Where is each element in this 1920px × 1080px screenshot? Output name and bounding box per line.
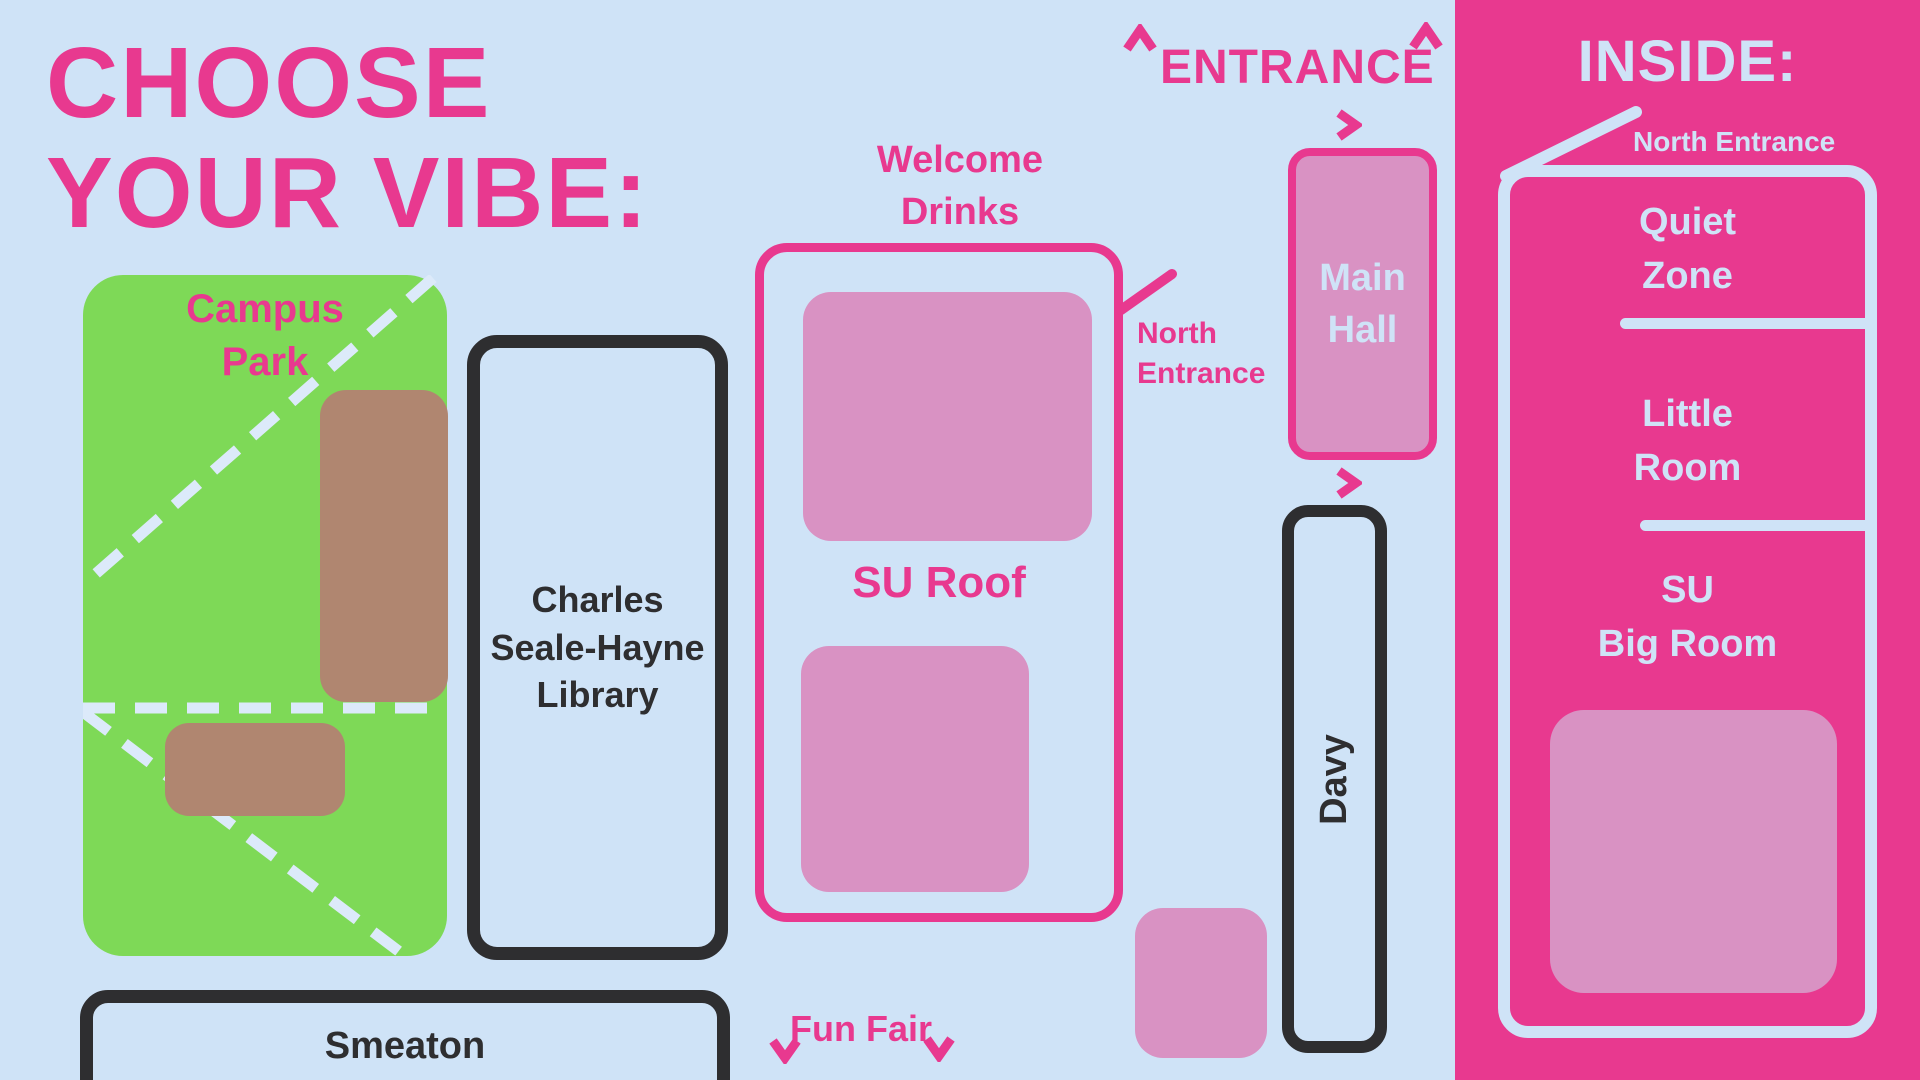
campus-park-area: Campus Park — [83, 275, 447, 956]
su-roof-terrace-upper — [803, 292, 1092, 541]
davy-area: Davy — [1282, 505, 1387, 1053]
chevron-right-icon — [1332, 108, 1362, 142]
page-title-line2: YOUR VIBE: — [46, 138, 746, 248]
su-north-entrance-line1: North — [1137, 314, 1265, 354]
room-little-room: Little Room — [1498, 388, 1877, 496]
welcome-drinks-heading: Welcome Drinks — [810, 134, 1110, 239]
library-label-line1: Charles — [490, 576, 704, 624]
campus-park-label: Campus Park — [83, 283, 447, 389]
inside-north-entrance-label: North Entrance — [1633, 126, 1920, 158]
smeaton-label: Smeaton — [93, 1025, 717, 1068]
main-hall-label: Main Hall — [1319, 252, 1406, 357]
page-title-line1: CHOOSE — [46, 28, 746, 138]
su-roof-area: SU Roof — [755, 243, 1123, 922]
room-quiet-zone-line1: Quiet — [1498, 196, 1877, 250]
su-roof-terrace-lower — [801, 646, 1029, 892]
entrance-heading: ENTRANCE — [1160, 40, 1435, 95]
room-divider — [1620, 318, 1877, 329]
inside-panel-title: INSIDE: — [1455, 28, 1920, 95]
room-su-big-room: SU Big Room — [1498, 564, 1877, 672]
inside-panel: INSIDE: North Entrance Quiet Zone Little… — [1455, 0, 1920, 1080]
main-hall-label-line2: Hall — [1319, 304, 1406, 356]
campus-park-label-line2: Park — [83, 336, 447, 389]
room-su-big-room-line2: Big Room — [1498, 618, 1877, 672]
unlabeled-building-rect — [1135, 908, 1267, 1058]
su-big-room-floor-rect — [1550, 710, 1837, 993]
park-dirt-patch-large — [320, 390, 448, 702]
fun-fair-label: Fun Fair — [781, 1008, 941, 1050]
su-north-entrance-label: North Entrance — [1137, 314, 1265, 393]
su-door-tick-icon — [1121, 274, 1172, 310]
event-map-poster: CHOOSE YOUR VIBE: ENTRANCE Campus Park C… — [0, 0, 1920, 1080]
room-quiet-zone-line2: Zone — [1498, 250, 1877, 304]
park-dirt-patch-small — [165, 723, 345, 816]
room-little-room-line2: Room — [1498, 442, 1877, 496]
library-label-line2: Seale-Hayne — [490, 624, 704, 672]
chevron-right-icon — [1332, 466, 1362, 500]
library-area: Charles Seale-Hayne Library — [467, 335, 728, 960]
su-north-entrance-line2: Entrance — [1137, 354, 1265, 394]
room-quiet-zone: Quiet Zone — [1498, 196, 1877, 304]
room-little-room-line1: Little — [1498, 388, 1877, 442]
library-label: Charles Seale-Hayne Library — [490, 576, 704, 719]
chevron-up-icon — [1122, 24, 1158, 54]
library-label-line3: Library — [490, 671, 704, 719]
main-hall-area: Main Hall — [1288, 148, 1437, 460]
chevron-up-icon — [1408, 22, 1444, 52]
su-roof-label: SU Roof — [764, 558, 1114, 608]
smeaton-area: Smeaton — [80, 990, 730, 1080]
welcome-drinks-line2: Drinks — [810, 186, 1110, 238]
page-title: CHOOSE YOUR VIBE: — [46, 28, 746, 248]
room-su-big-room-line1: SU — [1498, 564, 1877, 618]
campus-park-label-line1: Campus — [83, 283, 447, 336]
chevron-down-icon — [922, 1034, 956, 1062]
room-divider — [1640, 520, 1877, 531]
welcome-drinks-line1: Welcome — [810, 134, 1110, 186]
main-hall-label-line1: Main — [1319, 252, 1406, 304]
davy-label: Davy — [1313, 734, 1356, 825]
